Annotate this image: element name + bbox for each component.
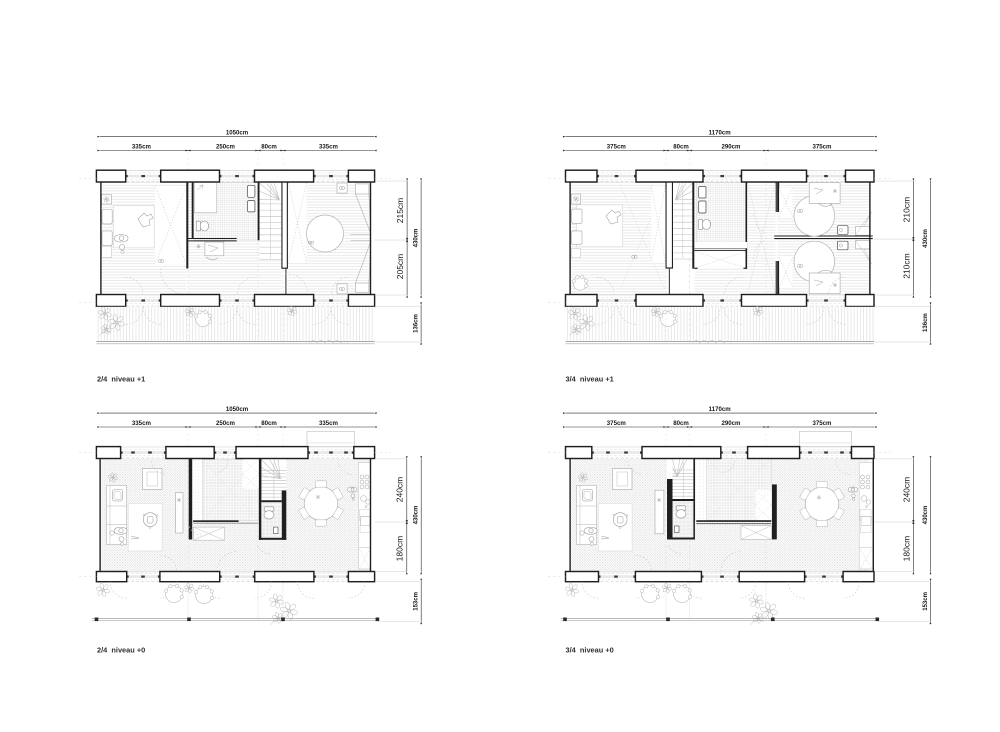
svg-text:2/4 niveau +0: 2/4 niveau +0 [97,645,145,654]
svg-text:3/4 niveau +0: 3/4 niveau +0 [566,645,614,654]
svg-text:205cm: 205cm [395,254,405,280]
svg-text:3/4 niveau +1: 3/4 niveau +1 [566,375,614,384]
svg-text:430cm: 430cm [923,229,929,248]
svg-text:335cm: 335cm [319,420,339,427]
svg-text:375cm: 375cm [607,144,627,151]
svg-text:210cm: 210cm [901,197,911,223]
svg-text:80cm: 80cm [673,420,689,427]
svg-text:240cm: 240cm [901,477,911,503]
svg-text:136cm: 136cm [414,314,420,333]
svg-text:430cm: 430cm [414,229,420,248]
svg-text:1170cm: 1170cm [709,406,732,413]
svg-text:375cm: 375cm [607,420,627,427]
svg-text:250cm: 250cm [216,144,236,151]
svg-text:80cm: 80cm [673,144,689,151]
svg-text:80cm: 80cm [261,420,277,427]
svg-text:240cm: 240cm [395,477,405,503]
svg-text:80cm: 80cm [261,144,277,151]
svg-text:250cm: 250cm [216,420,236,427]
svg-text:335cm: 335cm [319,144,339,151]
svg-text:180cm: 180cm [395,536,405,562]
svg-text:180cm: 180cm [901,536,911,562]
svg-text:430cm: 430cm [414,506,420,525]
svg-text:210cm: 210cm [901,253,911,279]
svg-text:153cm: 153cm [923,592,929,611]
svg-text:1050cm: 1050cm [226,406,249,413]
svg-text:153cm: 153cm [414,592,420,611]
svg-text:1050cm: 1050cm [226,130,249,137]
svg-text:2/4 niveau +1: 2/4 niveau +1 [97,375,145,384]
svg-text:375cm: 375cm [813,420,833,427]
svg-text:136cm: 136cm [923,313,929,332]
svg-text:290cm: 290cm [722,144,742,151]
svg-text:290cm: 290cm [722,420,742,427]
svg-text:215cm: 215cm [395,198,405,224]
svg-text:375cm: 375cm [813,144,833,151]
svg-text:430cm: 430cm [923,506,929,525]
svg-text:335cm: 335cm [132,420,152,427]
svg-text:335cm: 335cm [132,144,152,151]
svg-text:1170cm: 1170cm [709,130,732,137]
